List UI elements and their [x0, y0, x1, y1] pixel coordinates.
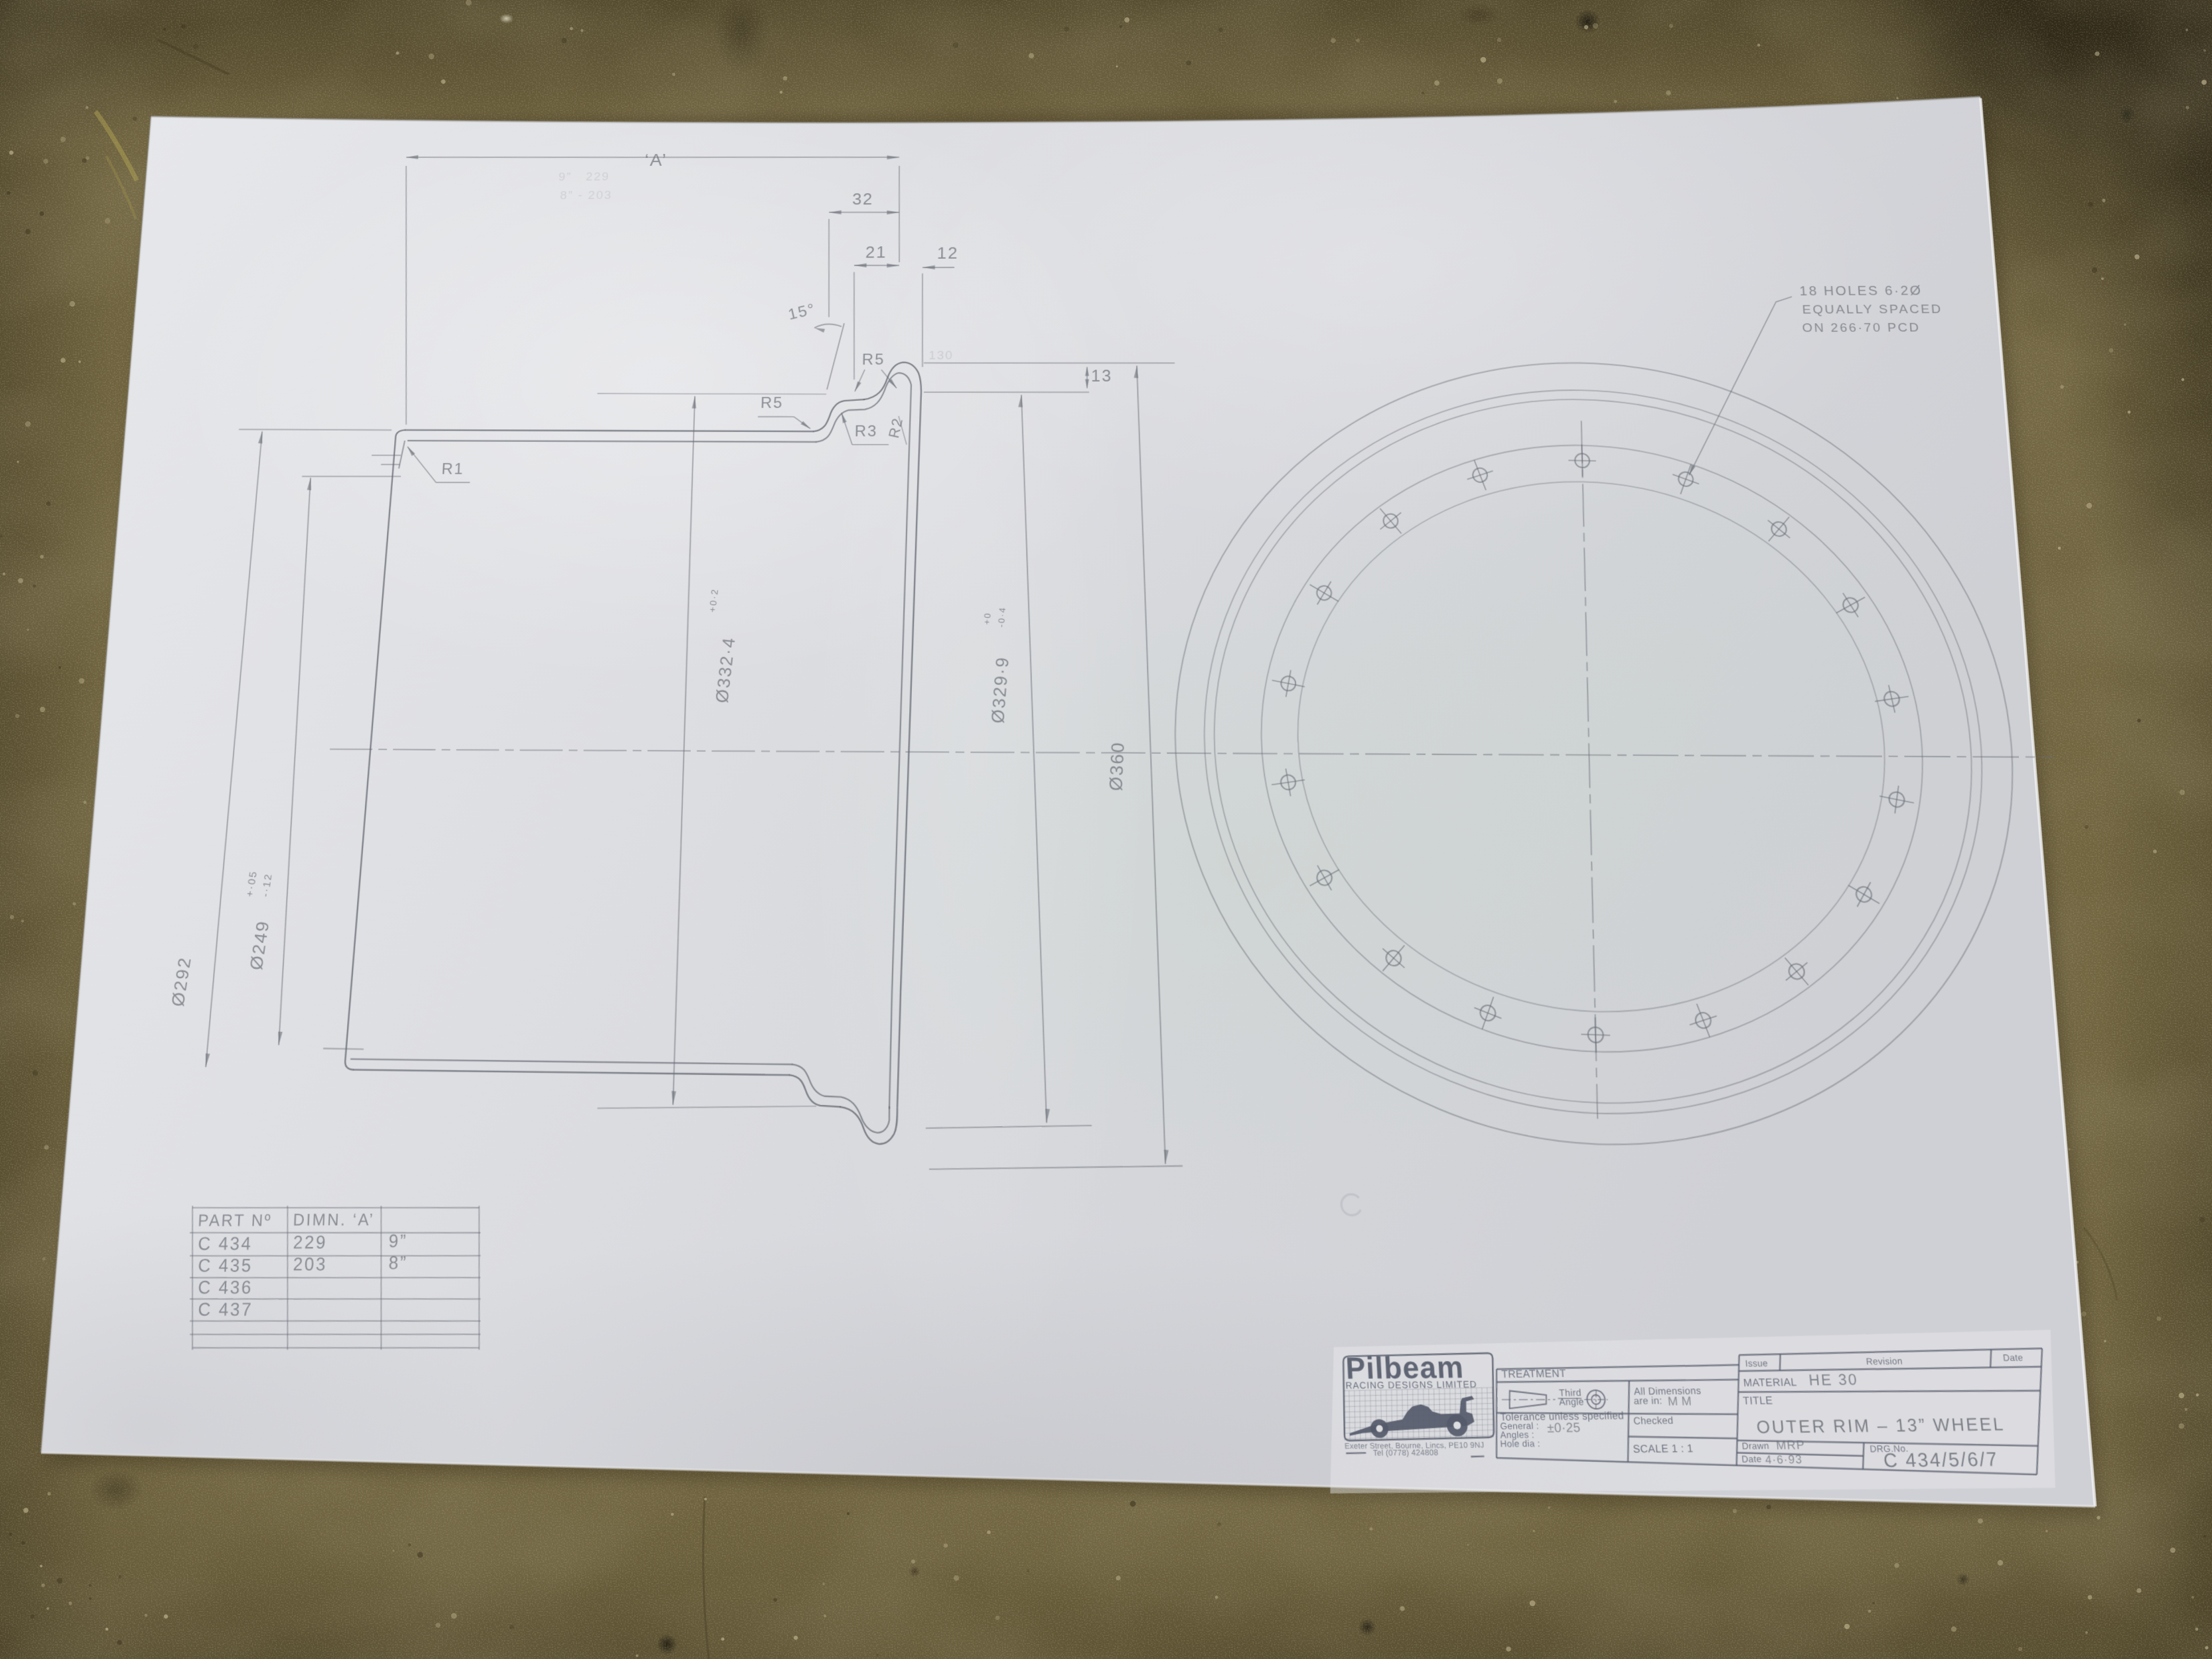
svg-text:Checked: Checked	[1633, 1414, 1674, 1427]
svg-text:Date: Date	[1741, 1455, 1762, 1465]
svg-text:C 434: C 434	[198, 1233, 254, 1254]
svg-text:4·6·93: 4·6·93	[1765, 1453, 1803, 1466]
svg-text:+0: +0	[982, 612, 993, 625]
svg-text:ON 266·70 PCD: ON 266·70 PCD	[1802, 320, 1921, 334]
svg-text:EQUALLY SPACED: EQUALLY SPACED	[1802, 302, 1943, 317]
svg-text:12: 12	[937, 244, 959, 263]
svg-text:C 436: C 436	[198, 1277, 254, 1298]
svg-text:130: 130	[928, 348, 954, 362]
svg-text:Date: Date	[2002, 1353, 2024, 1364]
svg-text:R5: R5	[761, 394, 784, 412]
svg-text:Ø360: Ø360	[1106, 741, 1128, 791]
svg-text:Tel (0778) 424808: Tel (0778) 424808	[1373, 1449, 1439, 1459]
svg-text:MRP: MRP	[1775, 1439, 1806, 1453]
svg-text:DIMN. ‘A’: DIMN. ‘A’	[293, 1211, 375, 1230]
svg-text:Issue: Issue	[1745, 1358, 1768, 1369]
svg-text:OUTER RIM – 13” WHEEL: OUTER RIM – 13” WHEEL	[1755, 1415, 2006, 1437]
svg-text:C 435: C 435	[198, 1255, 254, 1276]
svg-text:SCALE 1 : 1: SCALE 1 : 1	[1633, 1441, 1694, 1455]
svg-text:MATERIAL: MATERIAL	[1743, 1376, 1797, 1389]
svg-text:HE 30: HE 30	[1808, 1370, 1859, 1389]
svg-text:are in:: are in:	[1633, 1394, 1662, 1406]
svg-text:C 434/5/6/7: C 434/5/6/7	[1882, 1448, 2000, 1472]
svg-text:TREATMENT: TREATMENT	[1501, 1367, 1567, 1380]
svg-text:Drawn: Drawn	[1741, 1441, 1769, 1452]
svg-text:R5: R5	[862, 350, 885, 368]
svg-text:203: 203	[293, 1254, 328, 1275]
svg-text:PART Nº: PART Nº	[198, 1212, 273, 1230]
svg-text:R1: R1	[441, 460, 465, 478]
svg-text:Revision: Revision	[1866, 1356, 1903, 1367]
svg-text:‘A’: ‘A’	[644, 151, 668, 171]
svg-text:8”: 8”	[388, 1252, 408, 1273]
svg-text:32: 32	[852, 190, 874, 208]
svg-text:TITLE: TITLE	[1742, 1394, 1773, 1407]
svg-text:R3: R3	[855, 423, 878, 441]
svg-text:18 HOLES 6·2Ø: 18 HOLES 6·2Ø	[1799, 283, 1923, 298]
svg-text:13: 13	[1091, 367, 1112, 386]
svg-text:21: 21	[865, 243, 887, 261]
svg-text:9”: 9”	[388, 1230, 408, 1251]
svg-text:±0·25: ±0·25	[1546, 1421, 1581, 1435]
svg-text:229: 229	[293, 1232, 328, 1252]
svg-text:C 437: C 437	[198, 1299, 254, 1320]
svg-text:Hole dia :: Hole dia :	[1500, 1439, 1540, 1449]
svg-text:M M: M M	[1667, 1395, 1692, 1409]
svg-text:8” - 203: 8” - 203	[560, 188, 613, 202]
svg-text:-0·4: -0·4	[996, 606, 1008, 628]
svg-text:9” 229: 9” 229	[558, 169, 610, 183]
